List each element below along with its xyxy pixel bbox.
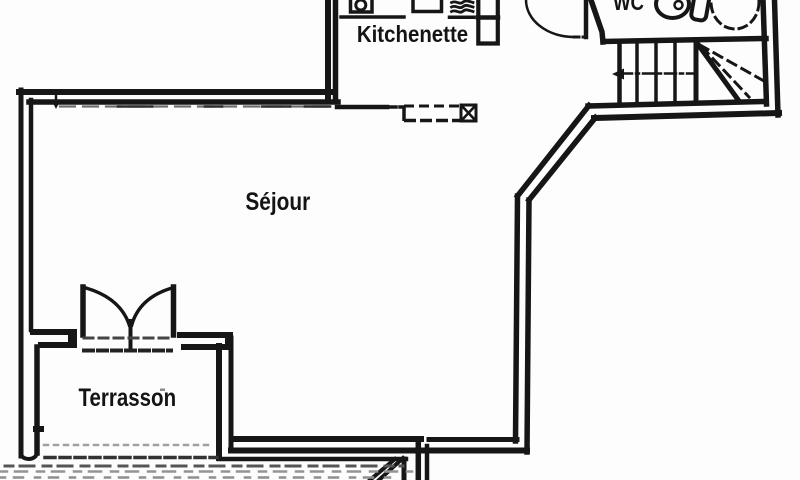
svg-text:Terrasson: Terrasson xyxy=(78,383,176,411)
svg-text:Kitchenette: Kitchenette xyxy=(357,21,468,48)
svg-text:WC: WC xyxy=(613,0,644,15)
svg-text:Séjour: Séjour xyxy=(245,187,310,215)
